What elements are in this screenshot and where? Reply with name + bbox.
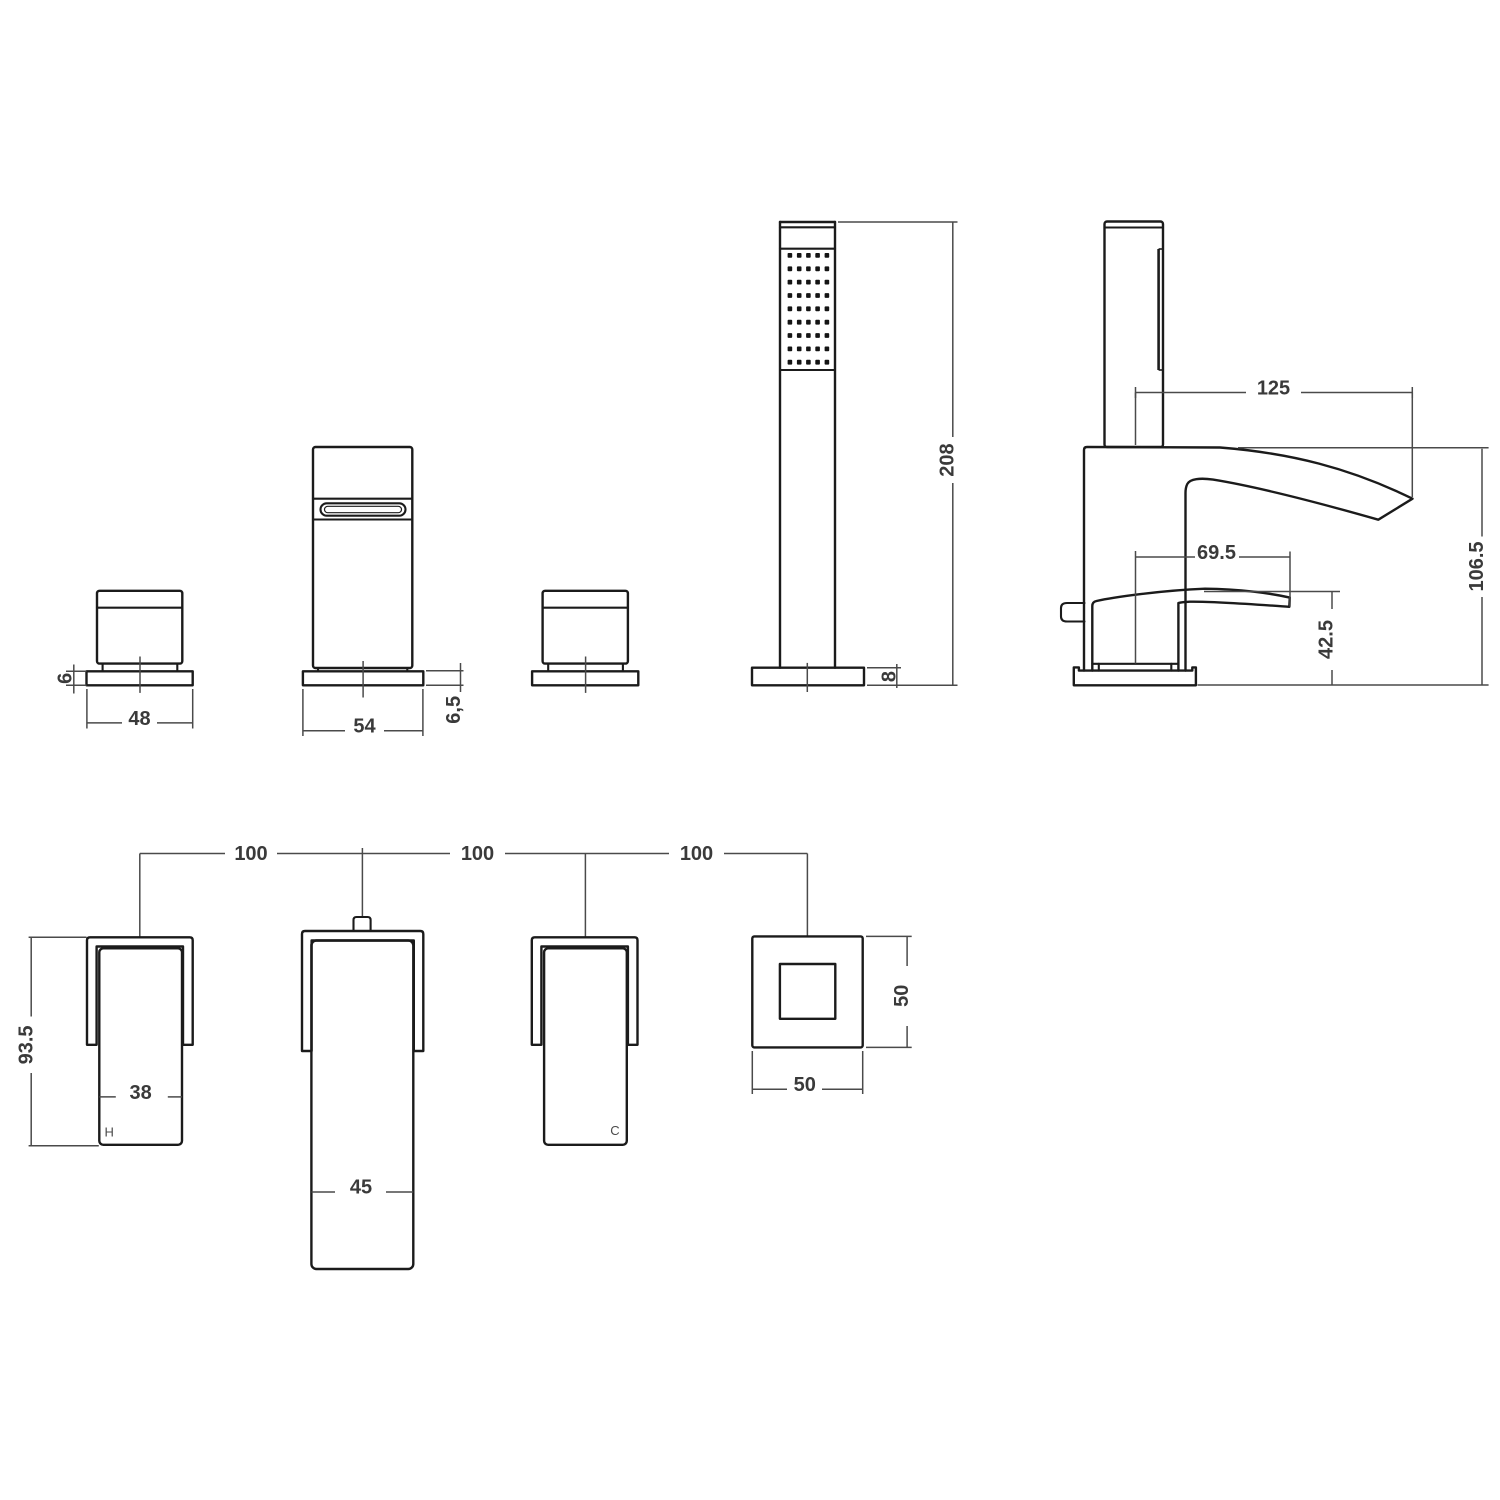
svg-text:6: 6 (55, 673, 77, 684)
svg-text:208: 208 (936, 443, 958, 476)
svg-text:54: 54 (353, 716, 376, 738)
svg-text:42.5: 42.5 (1316, 620, 1338, 659)
svg-text:100: 100 (680, 843, 713, 865)
svg-text:H: H (105, 1124, 114, 1139)
svg-text:100: 100 (461, 843, 494, 865)
svg-text:50: 50 (891, 985, 913, 1007)
svg-text:100: 100 (234, 843, 267, 865)
svg-text:8: 8 (879, 671, 901, 682)
svg-text:93.5: 93.5 (15, 1025, 37, 1064)
svg-text:106.5: 106.5 (1466, 541, 1488, 591)
svg-text:C: C (610, 1123, 619, 1138)
svg-text:69.5: 69.5 (1197, 542, 1236, 564)
svg-text:48: 48 (128, 708, 150, 730)
svg-text:6,5: 6,5 (443, 696, 465, 724)
svg-text:50: 50 (794, 1074, 816, 1096)
svg-text:45: 45 (350, 1177, 372, 1199)
svg-text:38: 38 (129, 1082, 151, 1104)
svg-text:125: 125 (1257, 378, 1290, 400)
